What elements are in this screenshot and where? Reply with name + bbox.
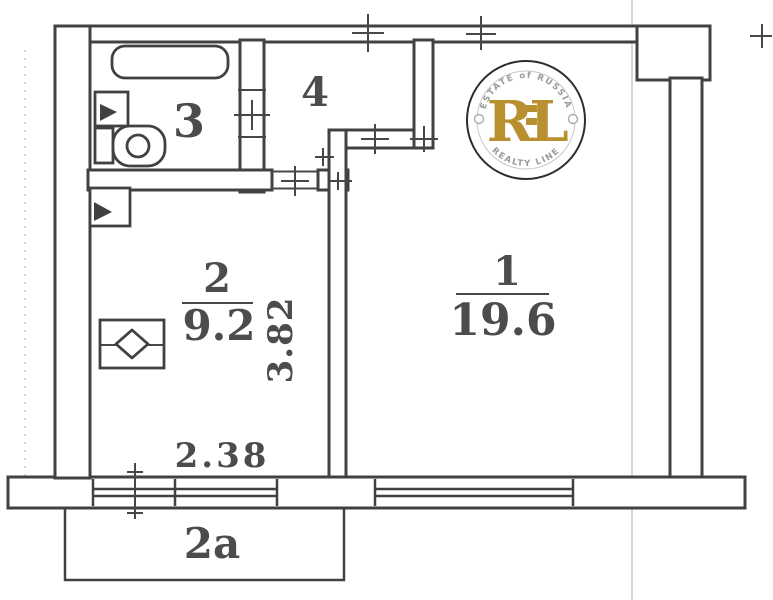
room-3-label: 3 xyxy=(173,94,205,148)
vent-hatch-icon xyxy=(90,188,130,226)
outer-walls xyxy=(55,26,710,478)
room-4-label: 4 xyxy=(301,69,329,116)
room-2-area: 9.2 xyxy=(182,301,255,350)
watermark-monogram-bar-bottom xyxy=(526,118,537,125)
room-1-label: 1 19.6 xyxy=(449,248,556,346)
room-1-area: 19.6 xyxy=(449,295,556,346)
watermark: ESTATE of RUSSIA REALTY LINE R L xyxy=(467,61,585,179)
kitchen-sink-icon xyxy=(100,320,164,368)
room-2-number: 2 xyxy=(203,255,231,302)
bathtub-icon xyxy=(112,46,228,78)
left-wall xyxy=(55,26,90,478)
floor-plan-svg: 3 4 2 9.2 1 19.6 2.38 3.82 2a ESTATE of … xyxy=(0,0,773,600)
washbasin-icon xyxy=(95,92,128,126)
bottom-wall-band xyxy=(8,463,745,519)
right-wall xyxy=(670,78,702,477)
watermark-side-dot-right xyxy=(569,115,578,124)
top-wall xyxy=(55,26,640,42)
dimension-bottom-width: 2.38 xyxy=(175,436,270,476)
floor-plan-page: 3 4 2 9.2 1 19.6 2.38 3.82 2a ESTATE of … xyxy=(0,0,773,600)
room-3-number: 3 xyxy=(173,94,205,148)
toilet-icon xyxy=(95,126,165,166)
room-4-number: 4 xyxy=(301,69,329,116)
balcony-label: 2a xyxy=(184,519,240,568)
watermark-side-dot-left xyxy=(475,115,484,124)
corner-block xyxy=(637,26,710,80)
room-2-label: 2 9.2 xyxy=(182,255,256,350)
room-1-number: 1 xyxy=(493,248,521,295)
watermark-monogram-bar-top xyxy=(526,105,537,112)
dimension-side-height: 3.82 xyxy=(261,297,301,384)
interior-walls xyxy=(88,40,433,477)
